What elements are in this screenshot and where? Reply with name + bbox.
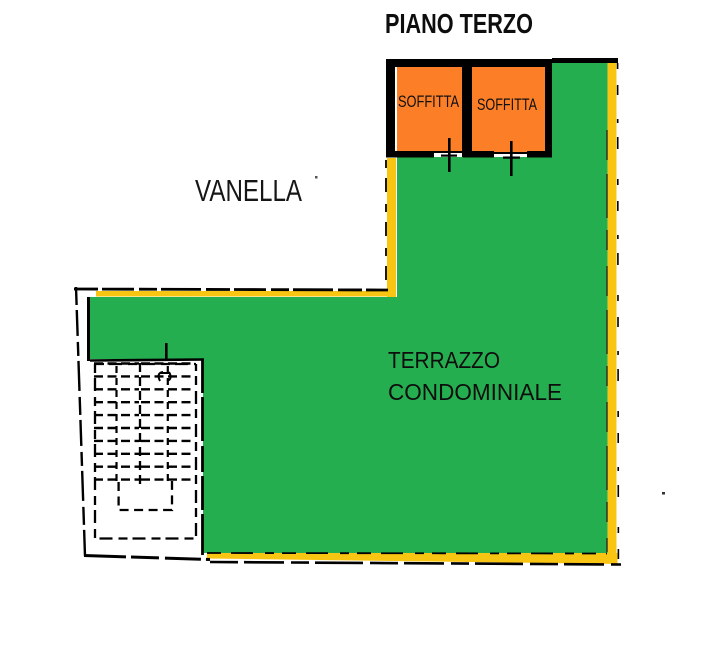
svg-text:PIANO TERZO: PIANO TERZO xyxy=(385,8,533,39)
svg-text:CONDOMINIALE: CONDOMINIALE xyxy=(388,379,562,405)
svg-text:TERRAZZO: TERRAZZO xyxy=(388,347,500,373)
svg-text:SOFFITTA: SOFFITTA xyxy=(398,92,459,111)
svg-text:SOFFITTA: SOFFITTA xyxy=(477,95,537,114)
svg-text:VANELLA: VANELLA xyxy=(195,173,302,208)
